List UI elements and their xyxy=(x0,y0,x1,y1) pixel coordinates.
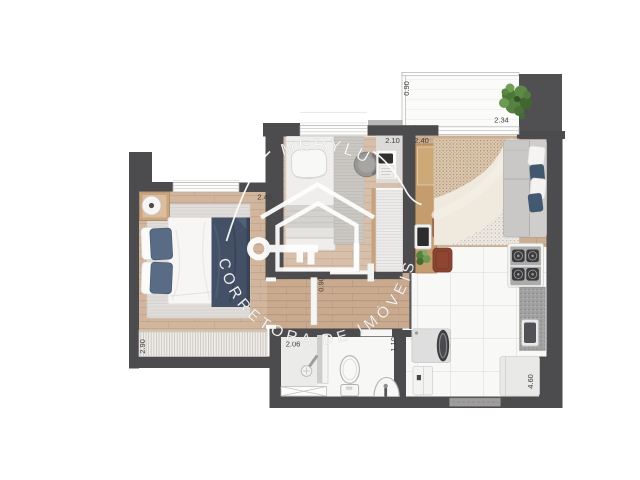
svg-text:0.90: 0.90 xyxy=(402,81,411,96)
svg-text:2.40: 2.40 xyxy=(257,193,272,202)
svg-text:2.10: 2.10 xyxy=(385,136,400,145)
svg-text:4.60: 4.60 xyxy=(526,374,535,389)
svg-text:2.40: 2.40 xyxy=(414,136,429,145)
svg-text:2.90: 2.90 xyxy=(138,339,147,354)
svg-text:0.90: 0.90 xyxy=(316,277,325,292)
svg-text:1.10: 1.10 xyxy=(389,337,398,352)
svg-text:2.34: 2.34 xyxy=(494,116,509,125)
